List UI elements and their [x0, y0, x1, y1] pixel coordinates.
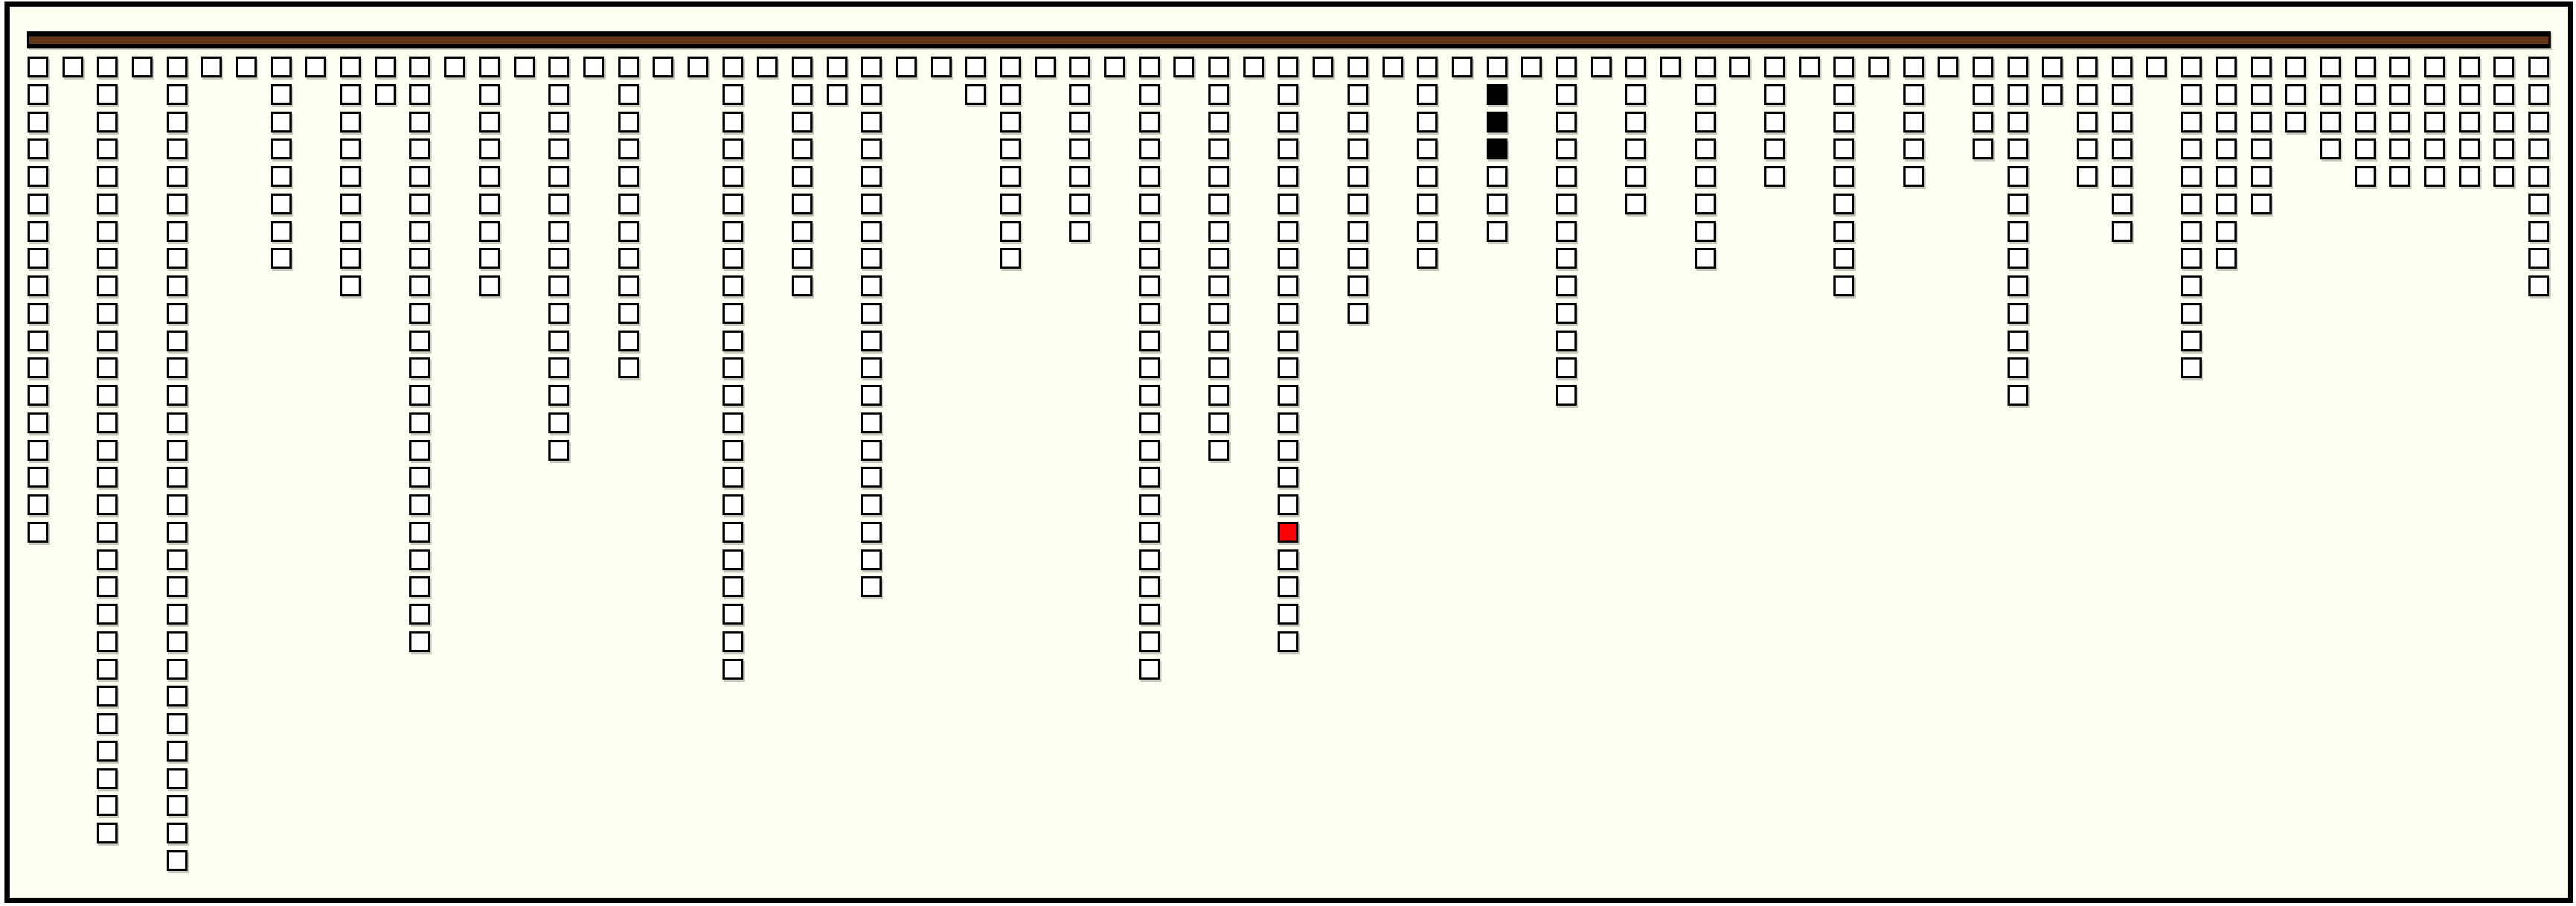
cell: [28, 248, 48, 269]
cell: [2493, 166, 2514, 187]
cell: [2493, 57, 2514, 77]
cell: [28, 112, 48, 133]
cell: [167, 440, 188, 461]
cell: [1556, 84, 1577, 105]
cell: [548, 194, 569, 214]
cell: [409, 494, 430, 515]
cell: [1938, 57, 1958, 77]
cell: [479, 138, 500, 159]
cell: [1764, 138, 1785, 159]
cell: [2077, 112, 2098, 133]
cell: [1208, 275, 1229, 296]
cell: [201, 57, 222, 77]
cell: [723, 467, 743, 488]
top-bar-stripe: [29, 36, 2548, 44]
cell: [97, 494, 118, 515]
cell: [97, 604, 118, 625]
cell: [2077, 84, 2098, 105]
cell: [2251, 57, 2272, 77]
cell: [2181, 57, 2202, 77]
cell: [340, 194, 361, 214]
cell: [167, 57, 188, 77]
cell: [1764, 112, 1785, 133]
cell: [723, 412, 743, 433]
cell: [167, 713, 188, 734]
cell: [1556, 275, 1577, 296]
cell: [409, 385, 430, 406]
cell: [618, 112, 639, 133]
cell: [1348, 303, 1368, 324]
cell: [63, 57, 83, 77]
cell: [723, 331, 743, 351]
cell: [1903, 84, 1924, 105]
cell: [2008, 357, 2028, 378]
cell: [861, 112, 882, 133]
filled-cell-black: [1487, 84, 1508, 105]
cell: [1278, 138, 1298, 159]
cell: [1278, 331, 1298, 351]
cell: [271, 138, 292, 159]
cell: [618, 275, 639, 296]
cell: [2355, 138, 2376, 159]
cell: [1695, 194, 1716, 214]
cell: [167, 221, 188, 242]
cell: [2112, 138, 2133, 159]
cell: [861, 303, 882, 324]
cell: [97, 166, 118, 187]
cell: [1278, 248, 1298, 269]
cell: [2181, 112, 2202, 133]
cell: [827, 57, 848, 77]
cell: [1833, 221, 1854, 242]
cell: [1139, 549, 1160, 570]
cell: [723, 440, 743, 461]
cell: [1764, 166, 1785, 187]
cell: [2146, 57, 2167, 77]
cell: [1695, 248, 1716, 269]
cell: [861, 84, 882, 105]
cell: [2285, 84, 2306, 105]
cell: [409, 166, 430, 187]
cell: [97, 467, 118, 488]
cell: [1208, 84, 1229, 105]
cell: [1695, 166, 1716, 187]
cell: [1278, 549, 1298, 570]
cell: [2389, 57, 2410, 77]
cell: [1000, 112, 1021, 133]
cell: [1000, 138, 1021, 159]
cell: [1695, 57, 1716, 77]
cell: [167, 138, 188, 159]
cell: [2424, 84, 2445, 105]
cell: [1278, 84, 1298, 105]
cell: [2008, 194, 2028, 214]
cell: [28, 331, 48, 351]
cell: [167, 494, 188, 515]
cell: [2251, 138, 2272, 159]
cell: [1695, 112, 1716, 133]
cell: [2181, 138, 2202, 159]
cell: [97, 440, 118, 461]
cell: [618, 303, 639, 324]
cell: [1208, 331, 1229, 351]
cell: [1278, 221, 1298, 242]
cell: [167, 331, 188, 351]
cell: [548, 166, 569, 187]
cell: [479, 84, 500, 105]
cell: [1139, 275, 1160, 296]
cell: [2251, 112, 2272, 133]
cell: [1833, 57, 1854, 77]
cell: [409, 303, 430, 324]
cell: [97, 412, 118, 433]
cell: [1348, 248, 1368, 269]
cell: [723, 385, 743, 406]
cell: [340, 112, 361, 133]
cell: [340, 166, 361, 187]
cell: [167, 385, 188, 406]
cell: [2077, 166, 2098, 187]
cell: [2008, 248, 2028, 269]
cell: [1278, 412, 1298, 433]
cell: [167, 467, 188, 488]
cell: [167, 303, 188, 324]
cell: [1625, 138, 1646, 159]
cell: [236, 57, 257, 77]
cell: [723, 112, 743, 133]
cell: [1417, 138, 1438, 159]
cell: [1973, 138, 1993, 159]
cell: [479, 221, 500, 242]
cell: [792, 275, 813, 296]
cell: [1556, 112, 1577, 133]
cell: [618, 357, 639, 378]
cell: [1000, 84, 1021, 105]
cell: [1556, 385, 1577, 406]
cell: [548, 357, 569, 378]
cell: [2493, 138, 2514, 159]
cell: [167, 850, 188, 871]
cell: [2008, 57, 2028, 77]
cell: [97, 57, 118, 77]
cell: [1521, 57, 1542, 77]
cell: [1069, 166, 1090, 187]
cell: [28, 412, 48, 433]
cell: [2528, 248, 2549, 269]
cell: [1348, 84, 1368, 105]
cell: [2008, 331, 2028, 351]
cell: [1208, 412, 1229, 433]
cell: [2528, 221, 2549, 242]
cell: [1139, 166, 1160, 187]
cell: [409, 467, 430, 488]
cell: [1348, 138, 1368, 159]
cell: [479, 166, 500, 187]
cell: [2216, 194, 2237, 214]
cell: [965, 57, 986, 77]
cell: [1069, 194, 1090, 214]
cell: [723, 84, 743, 105]
cell: [409, 248, 430, 269]
cell: [340, 248, 361, 269]
cell: [548, 303, 569, 324]
cell: [792, 112, 813, 133]
cell: [1348, 166, 1368, 187]
cell: [479, 112, 500, 133]
cell: [861, 440, 882, 461]
cell: [409, 57, 430, 77]
cell: [2459, 112, 2480, 133]
cell: [271, 221, 292, 242]
cell: [1660, 57, 1681, 77]
cell: [1139, 412, 1160, 433]
cell: [2042, 84, 2063, 105]
cell: [548, 331, 569, 351]
cell: [1139, 604, 1160, 625]
cell: [514, 57, 535, 77]
cell: [2181, 248, 2202, 269]
cell: [2528, 194, 2549, 214]
cell: [2389, 138, 2410, 159]
cell: [1417, 221, 1438, 242]
cell: [792, 166, 813, 187]
cell: [167, 275, 188, 296]
cell: [1139, 576, 1160, 597]
cell: [2112, 84, 2133, 105]
cell: [1556, 248, 1577, 269]
cell: [2320, 84, 2341, 105]
cell: [97, 631, 118, 652]
cell: [2285, 112, 2306, 133]
cell: [1139, 659, 1160, 680]
cell: [792, 221, 813, 242]
cell: [861, 522, 882, 543]
cell: [723, 303, 743, 324]
cell: [97, 686, 118, 706]
cell: [28, 440, 48, 461]
cell: [1625, 194, 1646, 214]
cell: [167, 112, 188, 133]
cell: [1833, 248, 1854, 269]
cell: [2424, 138, 2445, 159]
cell: [167, 823, 188, 843]
cell: [1208, 248, 1229, 269]
cell: [2459, 138, 2480, 159]
cell: [167, 659, 188, 680]
cell: [1208, 138, 1229, 159]
cell: [723, 275, 743, 296]
cell: [2181, 275, 2202, 296]
cell: [1348, 112, 1368, 133]
cell: [1278, 467, 1298, 488]
cell: [1625, 166, 1646, 187]
cell: [1417, 84, 1438, 105]
cell: [618, 138, 639, 159]
cell: [1348, 275, 1368, 296]
cell: [861, 248, 882, 269]
cell: [340, 275, 361, 296]
cell: [1625, 112, 1646, 133]
cell: [97, 768, 118, 789]
cell: [1139, 194, 1160, 214]
cell: [28, 522, 48, 543]
cell: [1729, 57, 1750, 77]
cell: [97, 741, 118, 762]
cell: [1139, 303, 1160, 324]
cell: [1556, 357, 1577, 378]
cell: [340, 57, 361, 77]
cell: [1973, 84, 1993, 105]
cell: [409, 331, 430, 351]
cell: [2320, 138, 2341, 159]
cell: [2528, 57, 2549, 77]
cell: [548, 412, 569, 433]
cell: [2008, 303, 2028, 324]
cell: [618, 166, 639, 187]
cell: [479, 57, 500, 77]
cell: [97, 303, 118, 324]
cell: [1208, 112, 1229, 133]
cell: [1139, 494, 1160, 515]
cell: [1139, 112, 1160, 133]
cell: [1417, 194, 1438, 214]
cell: [167, 576, 188, 597]
cell: [723, 357, 743, 378]
cell: [167, 549, 188, 570]
cell: [1348, 194, 1368, 214]
cell: [409, 604, 430, 625]
cell: [1695, 138, 1716, 159]
cell: [2251, 84, 2272, 105]
cell: [548, 57, 569, 77]
cell: [861, 576, 882, 597]
cell: [2181, 166, 2202, 187]
cell: [28, 221, 48, 242]
cell: [2424, 166, 2445, 187]
cell: [2181, 331, 2202, 351]
cell: [1278, 112, 1298, 133]
cell: [2251, 166, 2272, 187]
cell: [2389, 84, 2410, 105]
cell: [653, 57, 673, 77]
cell: [271, 84, 292, 105]
cell: [1278, 631, 1298, 652]
cell: [97, 659, 118, 680]
cell: [757, 57, 778, 77]
cell: [1069, 138, 1090, 159]
cell: [618, 194, 639, 214]
cell: [723, 248, 743, 269]
cell: [97, 84, 118, 105]
cell: [97, 795, 118, 816]
top-bar: [27, 31, 2551, 48]
cell: [2216, 166, 2237, 187]
cell: [1139, 331, 1160, 351]
cell: [167, 412, 188, 433]
cell: [861, 194, 882, 214]
cell: [1833, 166, 1854, 187]
cell: [1000, 166, 1021, 187]
cell: [2528, 275, 2549, 296]
visualization-stage: [0, 0, 2576, 906]
cell: [2389, 112, 2410, 133]
cell: [2112, 166, 2133, 187]
cell: [1139, 440, 1160, 461]
cell: [409, 84, 430, 105]
cell: [409, 357, 430, 378]
cell: [1903, 166, 1924, 187]
cell: [409, 112, 430, 133]
cell: [2320, 112, 2341, 133]
cell: [723, 659, 743, 680]
cell: [28, 194, 48, 214]
cell: [1313, 57, 1333, 77]
cell: [1139, 631, 1160, 652]
cell: [2528, 112, 2549, 133]
cell: [1278, 303, 1298, 324]
cell: [1278, 440, 1298, 461]
cell: [723, 138, 743, 159]
cell: [132, 57, 153, 77]
cell: [618, 248, 639, 269]
cell: [97, 522, 118, 543]
cell: [1069, 84, 1090, 105]
cell: [1035, 57, 1056, 77]
cell: [1243, 57, 1264, 77]
cell: [1348, 221, 1368, 242]
cell: [1208, 357, 1229, 378]
cell: [97, 194, 118, 214]
cell: [1903, 57, 1924, 77]
cell: [965, 84, 986, 105]
cell: [1903, 112, 1924, 133]
cell: [2181, 221, 2202, 242]
cell: [792, 194, 813, 214]
cell: [2216, 57, 2237, 77]
cell: [1487, 194, 1508, 214]
cell: [1208, 57, 1229, 77]
cell: [723, 631, 743, 652]
cell: [1556, 166, 1577, 187]
cell: [97, 549, 118, 570]
cell: [1903, 138, 1924, 159]
cell: [1139, 138, 1160, 159]
cell: [1000, 194, 1021, 214]
cell: [28, 385, 48, 406]
cell: [931, 57, 952, 77]
cell: [167, 357, 188, 378]
cell: [28, 275, 48, 296]
cell: [2112, 221, 2133, 242]
cell: [792, 57, 813, 77]
cell: [861, 357, 882, 378]
cell: [167, 741, 188, 762]
cell: [444, 57, 465, 77]
cell: [1208, 440, 1229, 461]
highlighted-cell-red: [1278, 522, 1298, 543]
cell: [409, 631, 430, 652]
cell: [688, 57, 708, 77]
cell: [1069, 221, 1090, 242]
cell: [167, 604, 188, 625]
cell: [548, 248, 569, 269]
cell: [409, 275, 430, 296]
cell: [2112, 194, 2133, 214]
cell: [723, 522, 743, 543]
cell: [1556, 194, 1577, 214]
cell: [548, 112, 569, 133]
cell: [2216, 112, 2237, 133]
